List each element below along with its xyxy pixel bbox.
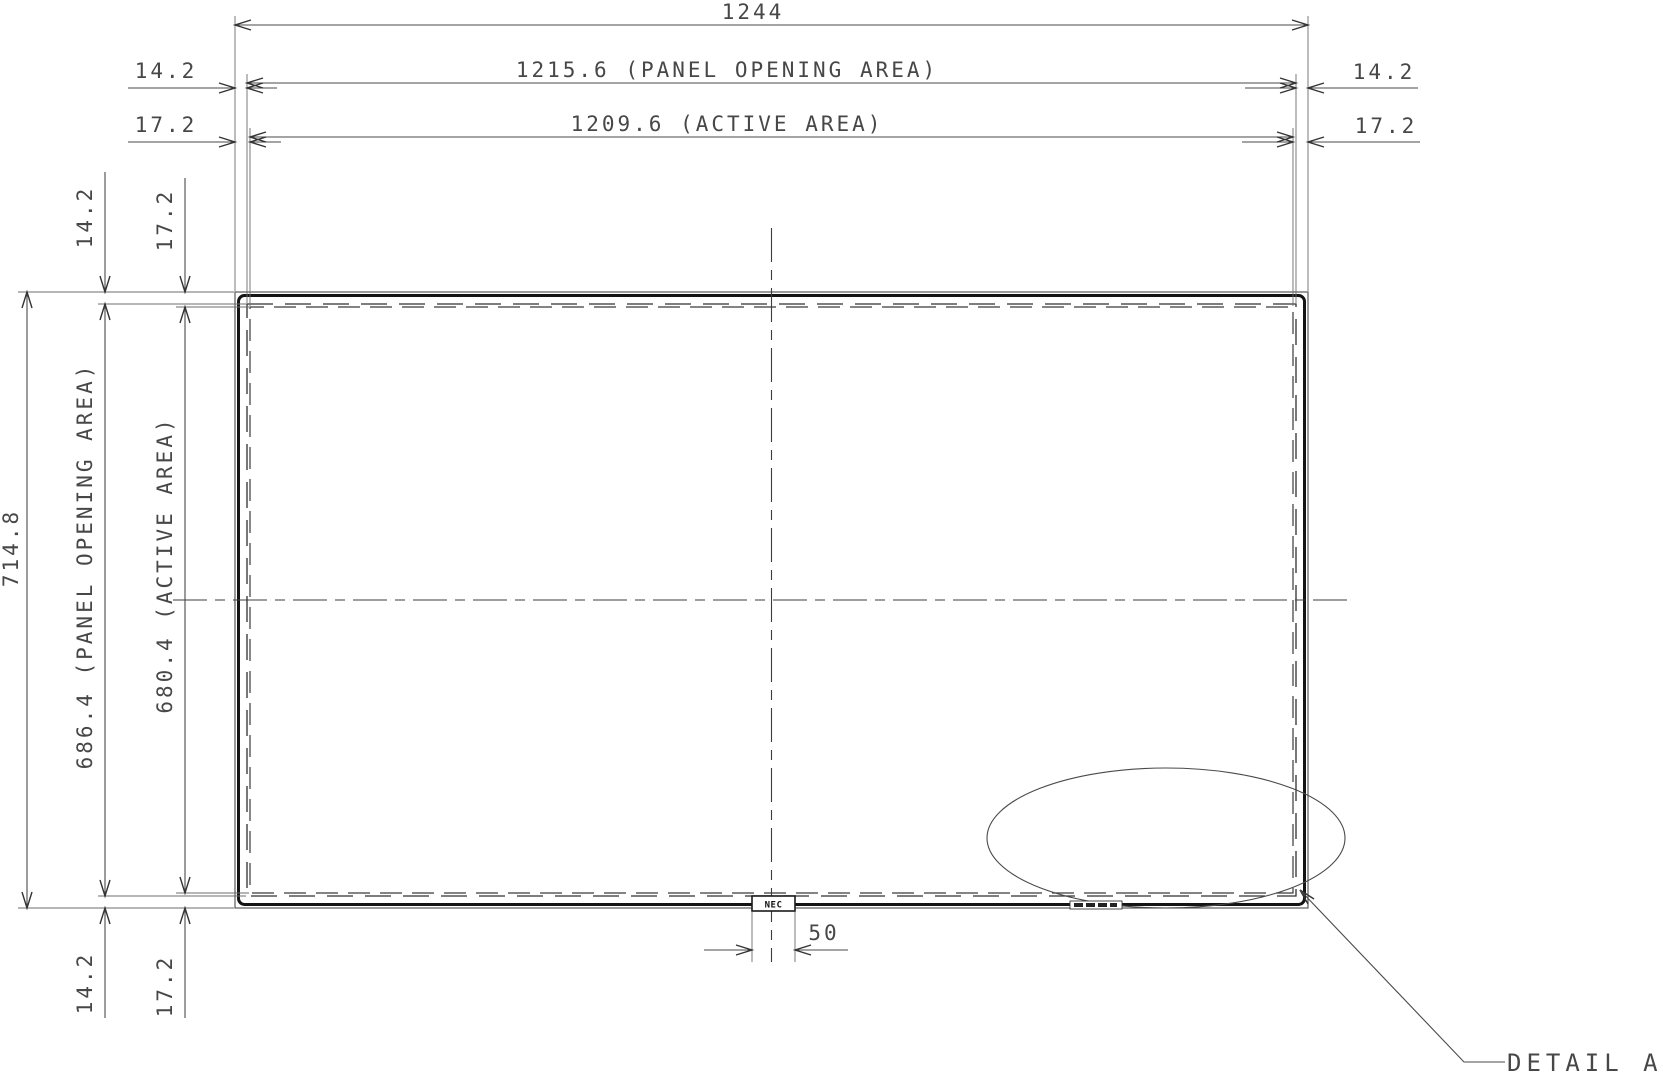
panel-outline-drawing: NEC 1244 1215.6 (PANEL OPENING AREA) 120… <box>0 0 1663 1080</box>
dim-left-top-margin-small: 14.2 <box>73 186 97 249</box>
dim-logo-width-label: 50 <box>808 921 839 945</box>
logo-box: NEC <box>752 896 795 911</box>
dim-left-bottom-margin-large: 17.2 <box>153 955 177 1018</box>
dim-left-bottom-margin-small: 14.2 <box>73 952 97 1015</box>
dim-active-width-label: 1209.6 (ACTIVE AREA) <box>571 112 884 136</box>
dim-active-height-label: 680.4 (ACTIVE AREA) <box>153 416 177 713</box>
dim-panel-opening-width-label: 1215.6 (PANEL OPENING AREA) <box>516 58 938 82</box>
detail-ellipse <box>987 768 1345 908</box>
connector-marks <box>1070 901 1122 909</box>
detail-callout <box>987 768 1505 1062</box>
dimension-arrows <box>22 20 1324 955</box>
detail-leader-line <box>1300 890 1505 1062</box>
drawing-canvas: NEC 1244 1215.6 (PANEL OPENING AREA) 120… <box>0 0 1663 1080</box>
dim-left-top-margin-large: 17.2 <box>153 189 177 252</box>
dim-overall-height-label: 714.8 <box>0 509 23 587</box>
dimension-labels: 1244 1215.6 (PANEL OPENING AREA) 1209.6 … <box>0 0 1663 1077</box>
dim-overall-width-label: 1244 <box>722 0 785 24</box>
dimension-lines <box>27 25 1420 1018</box>
detail-a-label: DETAIL A <box>1507 1049 1663 1077</box>
dim-top-left-margin-large: 17.2 <box>135 113 198 137</box>
center-lines <box>173 228 1350 962</box>
logo-text: NEC <box>765 901 783 911</box>
dim-panel-opening-height-label: 686.4 (PANEL OPENING AREA) <box>73 363 97 770</box>
dim-top-left-margin-small: 14.2 <box>135 59 198 83</box>
dim-top-right-margin-large: 17.2 <box>1355 114 1418 138</box>
dim-top-right-margin-small: 14.2 <box>1353 60 1416 84</box>
extension-lines <box>18 16 1308 962</box>
